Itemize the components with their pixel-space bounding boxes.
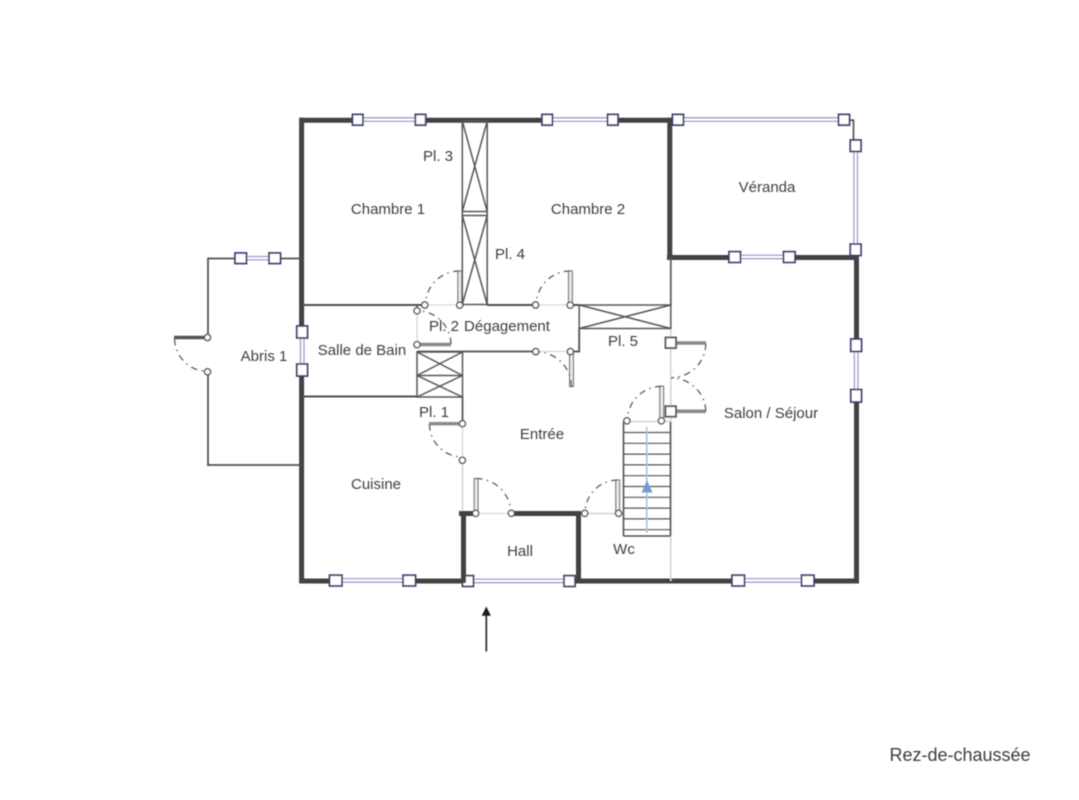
svg-text:Salon / Séjour: Salon / Séjour xyxy=(724,405,818,422)
svg-text:Pl. 3: Pl. 3 xyxy=(423,148,453,165)
svg-text:Entrée: Entrée xyxy=(520,426,564,443)
svg-text:Hall: Hall xyxy=(507,543,533,560)
svg-text:Cuisine: Cuisine xyxy=(351,476,401,493)
svg-text:Pl. 1: Pl. 1 xyxy=(419,404,449,421)
svg-text:Rez-de-chaussée: Rez-de-chaussée xyxy=(889,745,1030,765)
svg-text:Pl. 5: Pl. 5 xyxy=(608,333,638,350)
svg-text:Chambre 1: Chambre 1 xyxy=(351,201,425,218)
svg-text:Chambre 2: Chambre 2 xyxy=(551,201,625,218)
svg-text:Pl. 4: Pl. 4 xyxy=(495,246,525,263)
svg-text:Salle de Bain: Salle de Bain xyxy=(318,342,406,359)
svg-text:Véranda: Véranda xyxy=(739,179,796,196)
svg-text:Dégagement: Dégagement xyxy=(464,318,551,335)
svg-text:Pl. 2: Pl. 2 xyxy=(429,318,459,335)
svg-text:Abris 1: Abris 1 xyxy=(241,348,288,365)
svg-text:Wc: Wc xyxy=(613,541,635,558)
